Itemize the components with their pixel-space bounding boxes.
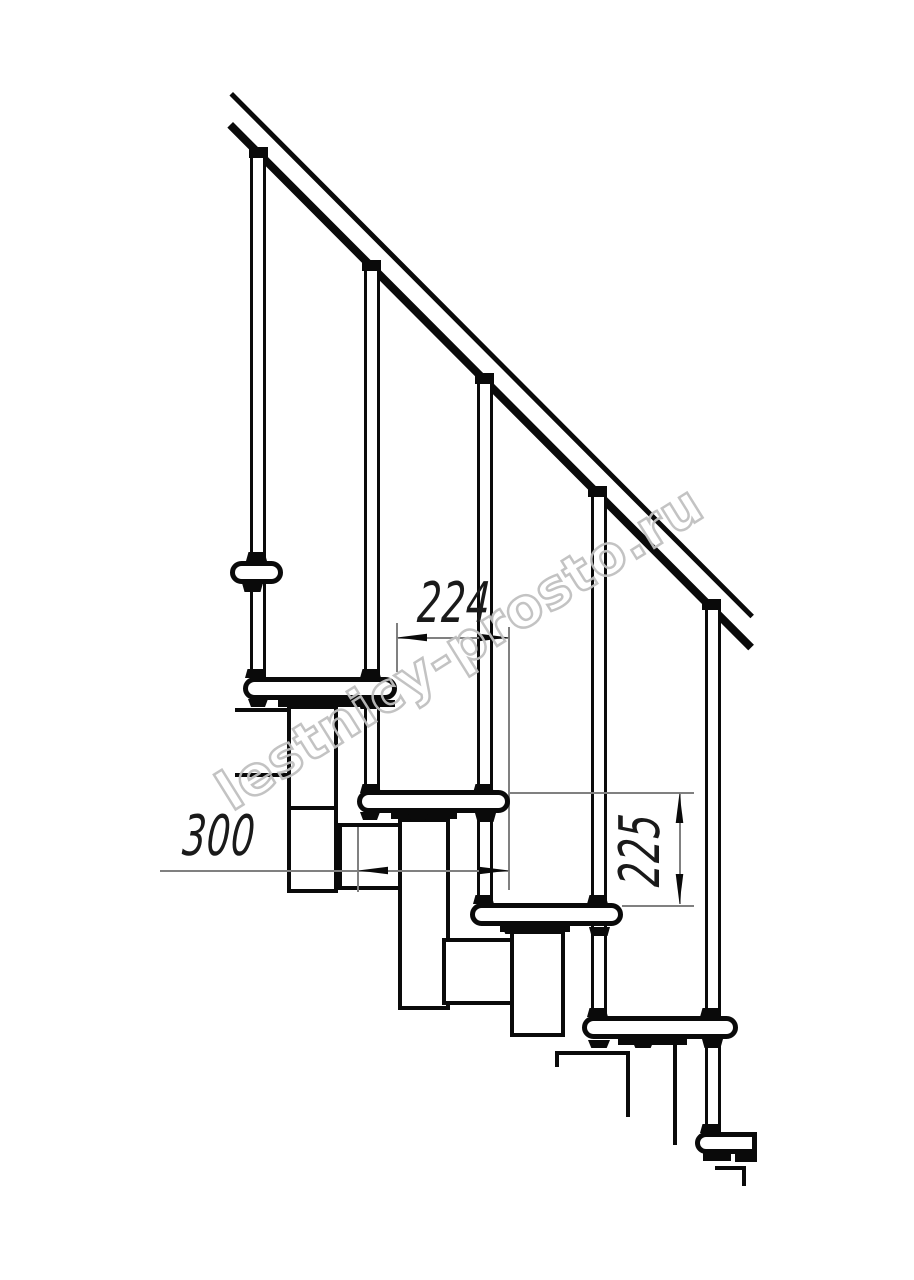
baluster-collar-bottom-5 — [702, 1039, 723, 1048]
baluster-5 — [705, 608, 721, 1133]
baluster-collar-top-2 — [245, 669, 266, 678]
tread-5 — [582, 1016, 738, 1039]
baluster-rail-cap-5 — [702, 599, 721, 610]
dimension-arrow-5 — [675, 793, 684, 823]
tread-foot-8 — [632, 1040, 654, 1048]
baluster-collar-top-1 — [246, 552, 267, 561]
tread-1 — [230, 561, 283, 584]
extension-line-5 — [622, 905, 694, 907]
module-box-4 — [442, 938, 517, 1005]
structure-line-7 — [673, 1045, 677, 1145]
baluster-collar-top-7 — [587, 895, 608, 904]
baluster-collar-bottom-4 — [589, 927, 610, 936]
dimension-line-2 — [160, 870, 509, 872]
module-box-5 — [510, 930, 565, 1037]
baluster-collar-top-10 — [700, 1124, 721, 1133]
floor-bracket — [695, 1132, 757, 1154]
tread-flange-5 — [703, 1153, 731, 1161]
tread-foot-6 — [544, 926, 565, 934]
baluster-rail-cap-1 — [249, 147, 268, 158]
baluster-collar-top-6 — [473, 895, 494, 904]
baluster-collar-top-9 — [700, 1008, 721, 1017]
baluster-collar-bottom-3 — [475, 813, 496, 822]
structure-line-4 — [555, 1051, 630, 1055]
module-box-2 — [338, 823, 402, 890]
baluster-collar-top-5 — [473, 784, 494, 793]
tread-3 — [357, 790, 510, 813]
extension-line-4 — [508, 792, 694, 794]
baluster-collar-top-4 — [360, 784, 381, 793]
structure-line-5 — [555, 1051, 559, 1067]
baluster-1 — [250, 155, 266, 677]
extension-line-3 — [357, 827, 359, 892]
structure-line-6 — [626, 1051, 630, 1117]
dimension-arrow-6 — [675, 874, 684, 904]
tread-4 — [470, 903, 623, 926]
tread-foot-7 — [588, 1040, 610, 1048]
structure-line-9 — [715, 1166, 745, 1170]
baluster-collar-bottom-1 — [242, 583, 263, 592]
baluster-rail-cap-2 — [362, 260, 381, 271]
tread-foot-4 — [408, 813, 428, 821]
dimension-arrow-4 — [479, 866, 509, 875]
structure-line-10 — [742, 1166, 746, 1186]
tread-foot-5 — [502, 926, 524, 934]
dimension-label-225: 225 — [613, 812, 669, 888]
baluster-rail-cap-3 — [475, 373, 494, 384]
staircase-technical-drawing: 224 300 225 lestnicy-prosto.ru — [0, 0, 914, 1280]
tread-foot-3 — [360, 812, 380, 820]
baluster-collar-top-8 — [587, 1008, 608, 1017]
